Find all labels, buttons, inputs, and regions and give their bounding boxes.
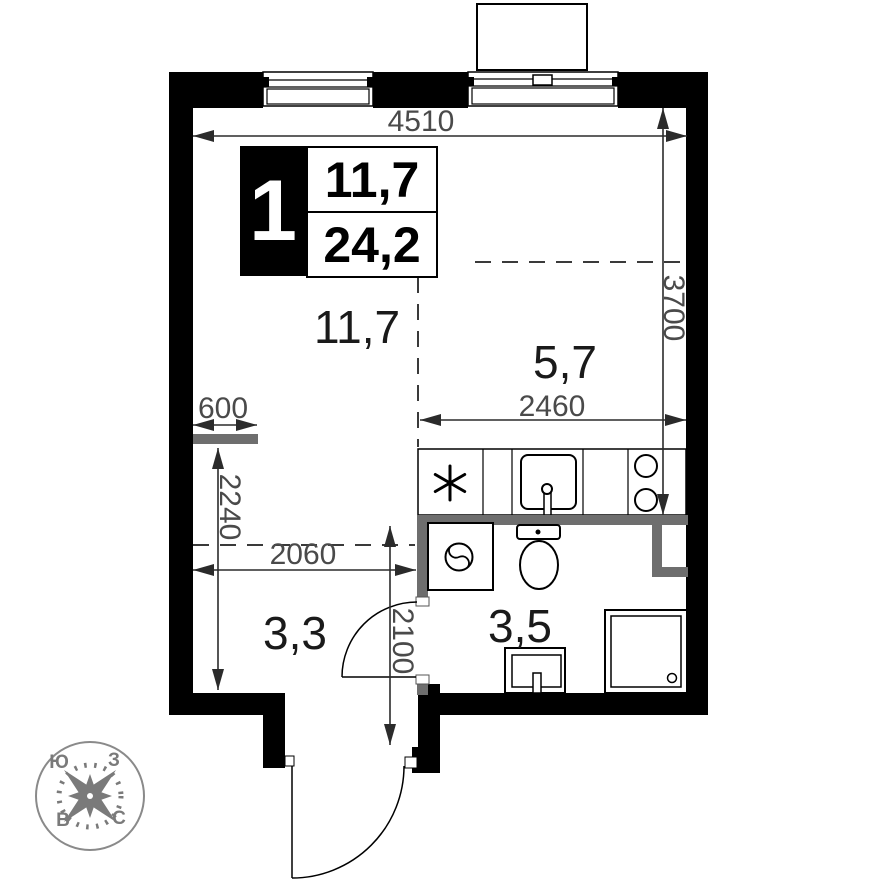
apartment-number: 1 <box>240 146 306 276</box>
window-right <box>468 72 618 106</box>
hallway-area-label: 3,3 <box>263 606 327 660</box>
shower-tray-icon <box>605 610 687 693</box>
washbasin-icon <box>505 648 565 693</box>
balcony-outline <box>477 4 587 70</box>
dim-right-height: 3700 <box>656 275 690 342</box>
dim-hall-height: 2240 <box>212 474 246 541</box>
compass-letter-north: С <box>112 808 126 830</box>
compass-letter-west: З <box>108 750 120 772</box>
kitchen-area-label: 5,7 <box>533 335 597 389</box>
bathroom-area-label: 3,5 <box>488 599 552 653</box>
total-area-value: 24,2 <box>308 213 436 276</box>
floor-plan: 1 11,7 24,2 11,7 5,7 3,3 3,5 4510 3700 2… <box>0 0 880 880</box>
washing-machine-icon <box>428 523 493 590</box>
dim-entry-zone-height: 2100 <box>385 608 419 675</box>
dim-niche-width: 600 <box>198 392 248 426</box>
window-left <box>263 72 373 106</box>
compass-letter-east: В <box>56 810 70 832</box>
area-table: 11,7 24,2 <box>306 146 438 278</box>
toilet-icon <box>517 525 560 589</box>
kitchen-sink-icon <box>521 455 576 515</box>
living-room-area-label: 11,7 <box>314 300 400 354</box>
dim-kitchen-width: 2460 <box>519 390 586 424</box>
living-area-value: 11,7 <box>308 148 436 213</box>
compass-letter-south: Ю <box>49 752 69 774</box>
entrance-door <box>292 766 404 878</box>
apartment-legend: 1 11,7 24,2 <box>240 146 438 278</box>
dim-top-width: 4510 <box>388 105 455 139</box>
dim-hall-width: 2060 <box>270 538 337 572</box>
entrance-door-jambs <box>285 756 417 768</box>
